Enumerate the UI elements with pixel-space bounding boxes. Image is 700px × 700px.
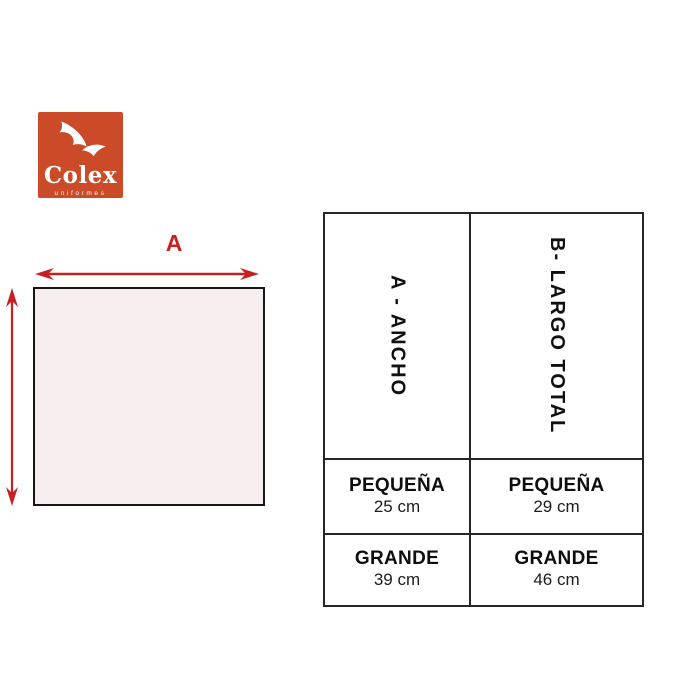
table-cell-ancho-grande: GRANDE 39 cm — [325, 535, 471, 605]
size-measurement: 46 cm — [533, 570, 579, 590]
table-cell-ancho-pequena: PEQUEÑA 25 cm — [325, 460, 471, 535]
size-measurement: 39 cm — [374, 570, 420, 590]
size-name: PEQUEÑA — [508, 475, 604, 497]
header-label: B- LARGO TOTAL — [545, 237, 568, 434]
size-guide-canvas: Colex uniformes A A - ANCHO B- LARGO TOT… — [0, 0, 700, 700]
table-cell-largo-grande: GRANDE 46 cm — [471, 535, 642, 605]
height-arrow-icon — [4, 287, 20, 507]
brand-logo: Colex uniformes — [38, 112, 123, 198]
size-name: GRANDE — [514, 548, 598, 570]
header-label: A - ANCHO — [386, 275, 409, 397]
size-name: PEQUEÑA — [349, 475, 445, 497]
table-header-largo-total: B- LARGO TOTAL — [471, 214, 642, 460]
width-dimension-label: A — [158, 231, 190, 256]
wing-icon — [52, 119, 110, 163]
table-cell-largo-pequena: PEQUEÑA 29 cm — [471, 460, 642, 535]
brand-wordmark: Colex — [44, 164, 117, 187]
product-square-diagram — [33, 287, 265, 506]
size-measurement: 29 cm — [533, 497, 579, 517]
size-name: GRANDE — [355, 548, 439, 570]
width-arrow-icon — [34, 266, 260, 282]
size-table: A - ANCHO B- LARGO TOTAL PEQUEÑA 25 cm P… — [323, 212, 644, 607]
brand-tagline: uniformes — [55, 190, 107, 197]
table-header-ancho: A - ANCHO — [325, 214, 471, 460]
size-measurement: 25 cm — [374, 497, 420, 517]
